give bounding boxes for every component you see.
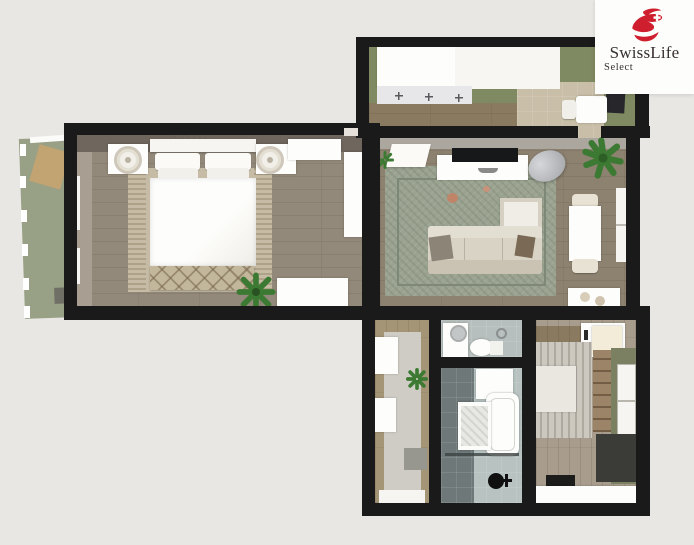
wall-kitchen-left bbox=[356, 37, 369, 137]
sofa-chaise-cushion bbox=[504, 202, 538, 229]
room2-desk bbox=[596, 434, 636, 482]
floorplan-render: SwissLife Select bbox=[0, 0, 694, 545]
tv-console-handle bbox=[478, 168, 498, 173]
wall-hall-bath bbox=[429, 318, 441, 506]
stove-burner bbox=[425, 93, 433, 101]
bedroom-storage-bench bbox=[288, 139, 341, 160]
living-large-plant bbox=[582, 136, 624, 180]
wc-sink bbox=[450, 325, 467, 342]
sideboard-bowl bbox=[580, 292, 590, 302]
wall-bath-room2 bbox=[522, 318, 536, 506]
wc-toilet-tank bbox=[490, 341, 503, 355]
hallway-plant bbox=[406, 368, 428, 390]
wall-wc-bath bbox=[429, 357, 536, 368]
bathroom-stool bbox=[488, 473, 504, 489]
wall-bottom-main bbox=[64, 306, 650, 320]
kitchen-wood-floor bbox=[369, 103, 517, 127]
wall-lower-left bbox=[362, 306, 375, 516]
hallway-door-strip bbox=[379, 490, 425, 503]
sofa-throw-blanket bbox=[428, 235, 453, 262]
room2-dark-item bbox=[546, 475, 575, 486]
room2-wardrobe-handle bbox=[584, 330, 588, 340]
sideboard-bowl bbox=[595, 296, 605, 306]
bathroom-faucet bbox=[503, 479, 512, 482]
room2-bottom-shelf bbox=[535, 486, 636, 504]
brand-name: SwissLife bbox=[610, 44, 680, 61]
wall-lower-bottom bbox=[362, 503, 650, 516]
swisslife-logo-icon bbox=[623, 7, 667, 44]
dining-table bbox=[569, 206, 601, 261]
sofa-accent-pillow bbox=[514, 235, 535, 259]
balcony-railing bbox=[20, 140, 28, 318]
bed bbox=[148, 139, 258, 269]
wall-living-right bbox=[626, 126, 640, 320]
wall-room2-right bbox=[636, 306, 650, 516]
dining-chair-bottom bbox=[572, 259, 598, 273]
bedroom-door-cut bbox=[344, 128, 358, 136]
living-sideboard bbox=[568, 288, 620, 308]
bed-headboard bbox=[150, 139, 256, 152]
kitchen-table bbox=[576, 96, 607, 123]
brand-subname: Select bbox=[604, 63, 633, 74]
kitchen-counter-front bbox=[377, 86, 472, 104]
kitchen-counter-extension bbox=[455, 47, 560, 89]
wc-paper-holder bbox=[496, 328, 507, 339]
bed-duvet bbox=[150, 178, 256, 266]
wall-kitchen-living-a bbox=[356, 126, 578, 138]
brand-card: SwissLife Select bbox=[595, 0, 694, 94]
kitchen-chair bbox=[562, 100, 576, 119]
hallway-mat bbox=[404, 448, 427, 470]
shower-glass-line bbox=[445, 453, 519, 456]
hallway-cabinet bbox=[375, 398, 396, 432]
rug-motif bbox=[483, 186, 490, 192]
nightstand-lamp-right bbox=[256, 146, 284, 174]
wall-bedroom-left bbox=[64, 123, 77, 320]
bedroom-desk bbox=[277, 278, 348, 307]
room2-window bbox=[617, 364, 636, 440]
room2-bed-pillow bbox=[536, 366, 576, 412]
hallway-cabinet bbox=[375, 337, 398, 374]
wall-bedroom-living bbox=[362, 123, 380, 320]
sofa bbox=[428, 198, 542, 274]
stove-burner bbox=[395, 92, 403, 100]
washing-machine bbox=[458, 402, 491, 450]
stove-burner bbox=[455, 94, 463, 102]
nightstand-lamp-left bbox=[114, 146, 142, 174]
sofa-front bbox=[428, 260, 542, 274]
wall-bedroom-top bbox=[64, 123, 366, 135]
bedroom-wardrobe bbox=[344, 152, 363, 237]
room2-ladder-shelf bbox=[593, 350, 611, 432]
tv bbox=[452, 148, 518, 162]
